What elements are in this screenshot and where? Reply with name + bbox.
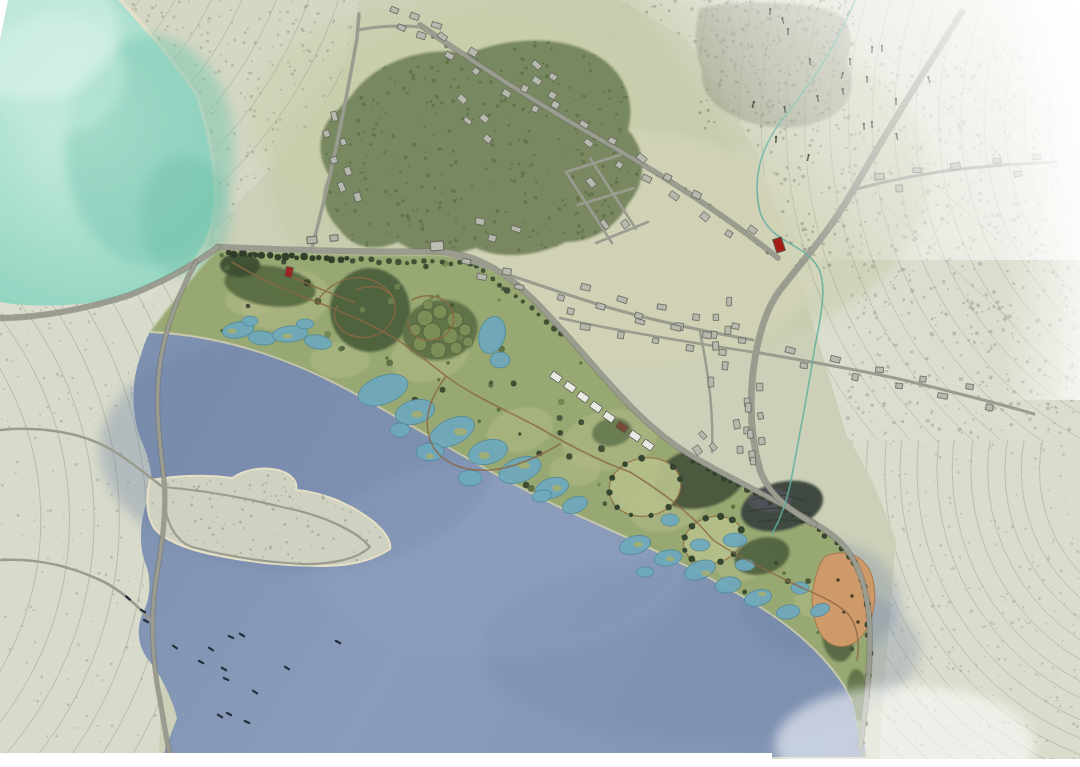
masterplan-rendering xyxy=(0,0,1080,767)
site-plan-map xyxy=(0,0,1080,767)
bottom-margin xyxy=(0,753,772,767)
